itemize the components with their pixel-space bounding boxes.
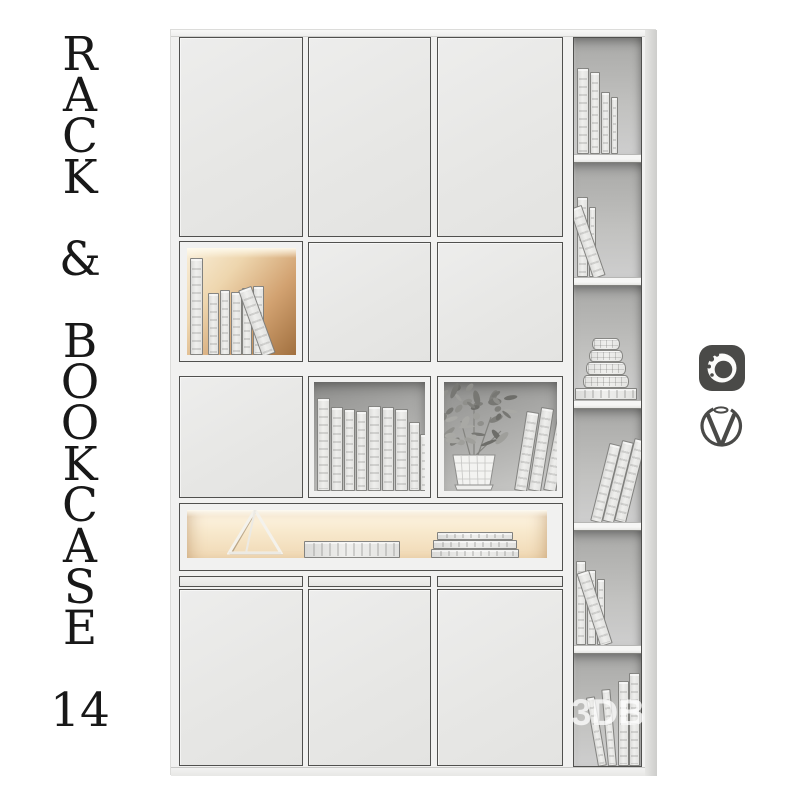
book [382, 407, 394, 491]
product-title: R A C K & B O O K C A S E 14 [44, 34, 116, 731]
rack-shelf [574, 154, 641, 163]
rack-shelf [574, 645, 641, 654]
rack-shelf [574, 522, 641, 531]
plant-shelf-cavity [444, 382, 557, 491]
leaf [504, 394, 518, 401]
round-box [592, 338, 620, 350]
book [590, 72, 600, 154]
book [331, 407, 343, 491]
vray-logo [699, 404, 743, 449]
drawer-strip-left [179, 576, 303, 587]
rack-compartment-4 [574, 409, 641, 522]
flat-book [431, 549, 519, 558]
book [611, 97, 618, 154]
door-top-center [308, 37, 431, 237]
corona-renderer-logo [698, 344, 746, 392]
open-shelf-backlit-wide [179, 503, 563, 571]
bookcase [170, 29, 656, 775]
open-shelf-books [308, 376, 431, 498]
book [409, 422, 420, 491]
rack-compartment-5 [574, 531, 641, 645]
plant-foliage [444, 383, 518, 447]
door-bottom-right [437, 589, 563, 766]
leaf [472, 411, 481, 420]
book [231, 292, 242, 355]
drawer-strip-right [437, 576, 563, 587]
cabinet-bottom-edge [171, 767, 657, 776]
leaf [477, 421, 484, 427]
round-box [586, 362, 626, 375]
rack-compartment-2 [574, 163, 641, 277]
book [208, 293, 219, 355]
backlit-shelf-cavity [187, 248, 296, 355]
open-shelf-backlit-small [179, 241, 303, 362]
leaf [454, 403, 464, 414]
watermark-3db: 3DB [566, 692, 650, 734]
rack-shelf [574, 400, 641, 409]
door-middle-left [179, 376, 303, 498]
door-middle-right [437, 242, 563, 362]
flat-book [433, 540, 517, 549]
book [317, 398, 330, 491]
book [601, 92, 610, 154]
side-rack-column [573, 37, 642, 767]
book [577, 68, 589, 154]
open-shelf-plant [437, 376, 563, 498]
door-bottom-center [308, 589, 431, 766]
flat-book [575, 388, 637, 400]
cabinet-side-panel [645, 30, 657, 776]
book [220, 290, 230, 355]
books-shelf-cavity [314, 382, 425, 491]
cabinet-top-edge [171, 30, 657, 37]
door-top-right [437, 37, 563, 237]
wide-niche-cavity [187, 510, 547, 558]
round-box [583, 375, 629, 388]
door-middle-center [308, 242, 431, 362]
rack-compartment-1 [574, 38, 641, 154]
leaf [494, 405, 503, 413]
wireframe-triangle [227, 510, 283, 556]
flat-book [304, 541, 400, 558]
leaf [444, 389, 449, 401]
plant-pot [453, 455, 495, 490]
book [368, 406, 381, 491]
flat-book [437, 532, 513, 540]
page: R A C K & B O O K C A S E 14 [0, 0, 800, 800]
door-top-left [179, 37, 303, 237]
leaf [464, 383, 474, 393]
book [190, 258, 203, 355]
rack-shelf [574, 277, 641, 286]
round-box [589, 350, 623, 362]
rack-compartment-3 [574, 286, 641, 400]
book [395, 409, 408, 491]
book [356, 411, 367, 491]
book [344, 409, 355, 491]
door-bottom-left [179, 589, 303, 766]
drawer-strip-center [308, 576, 431, 587]
book [420, 434, 425, 491]
leaf [444, 421, 446, 432]
